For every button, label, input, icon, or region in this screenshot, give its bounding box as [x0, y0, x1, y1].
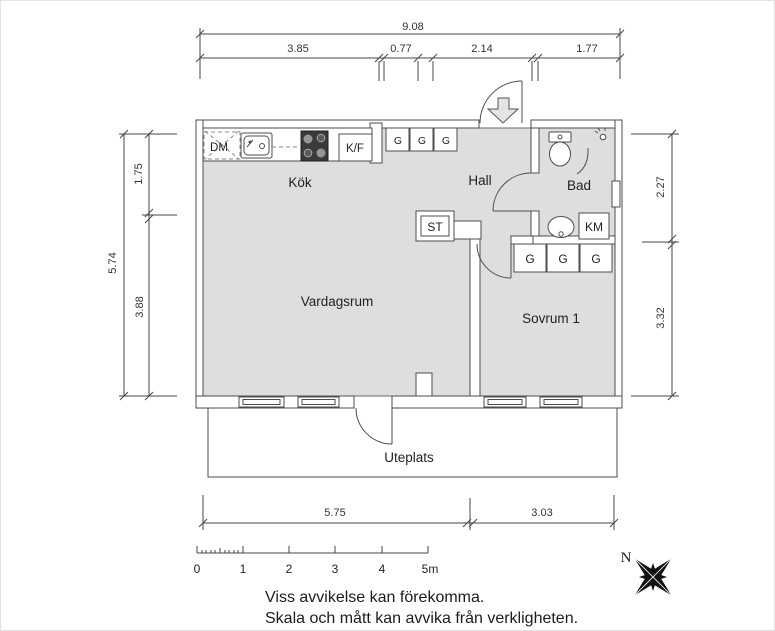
compass-rose: N [616, 540, 690, 614]
dim-top-seg-3: 2.14 [471, 43, 492, 55]
wardrobe-label: G [418, 135, 426, 147]
scale-bar: 0 1 2 3 4 5m [194, 546, 439, 576]
st-closet: ST [416, 211, 454, 241]
stove-icon [301, 131, 328, 161]
room-label-patio: Uteplats [384, 450, 434, 465]
wall-top-right [531, 120, 622, 128]
entrance-door [480, 81, 522, 123]
dim-left-total: 5.74 [107, 252, 119, 273]
scale-label-2: 2 [286, 562, 293, 576]
dim-bottom-seg-2: 3.03 [531, 507, 552, 519]
fridge-freezer-label: K/F [346, 143, 364, 155]
dimension-right: 2.27 3.32 [631, 130, 679, 400]
dimension-bottom: 5.75 3.03 [199, 495, 618, 530]
wall-bath-upper [531, 128, 539, 173]
patio-door [356, 408, 392, 444]
wardrobe-label: G [442, 135, 450, 147]
wall-bedroom-north [511, 236, 533, 244]
bath-niche [612, 181, 620, 207]
wardrobe-label: G [591, 252, 600, 266]
window-icon [484, 397, 526, 407]
room-label-bedroom: Sovrum 1 [522, 311, 580, 326]
room-label-bathroom: Bad [567, 178, 591, 193]
wall-top-left [196, 120, 479, 128]
dimension-top: 9.08 3.85 0.77 2.14 1.77 [196, 21, 624, 81]
dim-left-seg-1: 1.75 [133, 163, 145, 184]
dishwasher-label: DM [210, 142, 228, 154]
window-icon [239, 397, 284, 407]
dim-right-seg-1: 2.27 [655, 176, 667, 197]
bedroom-wardrobes: G G G [514, 244, 612, 272]
hall-wardrobes: G G G [386, 128, 457, 151]
scale-label-1: 1 [240, 562, 247, 576]
kitchen-sink-icon [241, 133, 272, 158]
washing-machine-icon: KM [579, 213, 609, 239]
room-label-kitchen: Kök [288, 175, 312, 190]
dim-top-seg-1: 3.85 [287, 43, 308, 55]
north-label: N [621, 550, 632, 566]
room-label-hall: Hall [468, 173, 491, 188]
wall-room-divider [470, 239, 480, 396]
patio-outline [208, 408, 617, 477]
scale-label-0: 0 [194, 562, 201, 576]
dim-right-seg-2: 3.32 [655, 307, 667, 328]
window-icon [540, 397, 582, 407]
dim-top-seg-4: 1.77 [576, 43, 597, 55]
bath-sink-icon [548, 217, 574, 238]
wall-left [196, 120, 203, 408]
wardrobe-label: G [394, 135, 402, 147]
closet-label: ST [427, 220, 443, 234]
wardrobe-label: G [525, 252, 534, 266]
window-icon [298, 397, 339, 407]
disclaimer-line-2: Skala och mått kan avvika från verklighe… [265, 609, 578, 627]
dimension-left: 5.74 1.75 3.88 [107, 130, 177, 400]
dim-top-seg-2: 0.77 [390, 43, 411, 55]
entry-arrow-icon [488, 98, 518, 123]
scale-label-3: 3 [332, 562, 339, 576]
wardrobe-label: G [558, 252, 567, 266]
dim-top-total: 9.08 [402, 21, 423, 33]
wall-right [615, 120, 622, 408]
wall-pillar [416, 373, 432, 396]
toilet-icon [549, 132, 571, 166]
dim-left-seg-2: 3.88 [134, 296, 146, 317]
floorplan-canvas: G G G ST KM [0, 0, 775, 631]
washing-machine-label: KM [585, 220, 603, 234]
scale-label-4: 4 [379, 562, 386, 576]
scale-label-5: 5m [422, 562, 439, 576]
wall-hall-step [454, 221, 481, 239]
disclaimer-line-1: Viss avvikelse kan förekomma. [265, 589, 484, 606]
room-label-living-room: Vardagsrum [301, 294, 374, 309]
dim-bottom-seg-1: 5.75 [324, 507, 345, 519]
